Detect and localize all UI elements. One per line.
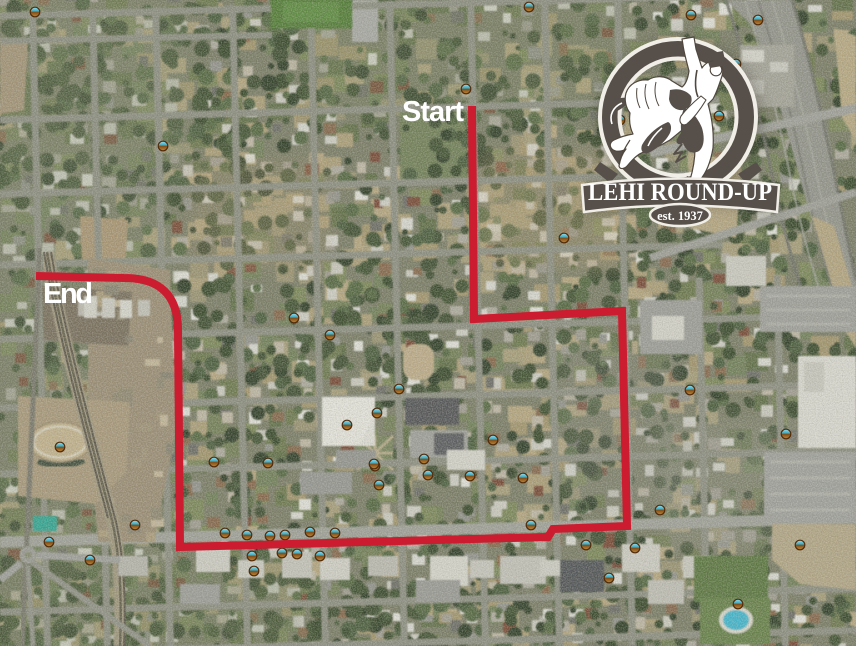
svg-text:Start: Start [402, 96, 464, 128]
svg-text:End: End [43, 278, 93, 310]
svg-text:LEHI ROUND-UP: LEHI ROUND-UP [588, 179, 772, 206]
svg-text:est. 1937: est. 1937 [657, 209, 703, 223]
